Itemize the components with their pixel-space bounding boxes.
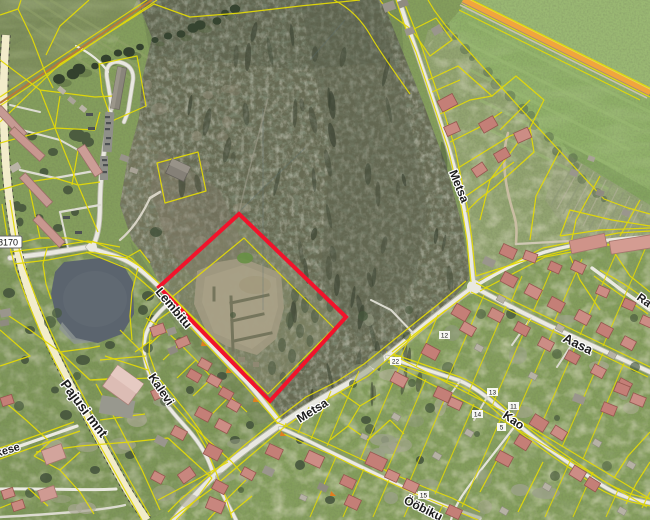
svg-text:15: 15 [420,493,428,500]
svg-text:13: 13 [489,390,497,397]
svg-text:8170: 8170 [0,238,18,248]
svg-text:5: 5 [500,425,504,432]
svg-text:22: 22 [392,359,400,366]
svg-text:12: 12 [441,333,449,340]
svg-text:11: 11 [510,404,517,411]
svg-text:14: 14 [474,412,482,419]
